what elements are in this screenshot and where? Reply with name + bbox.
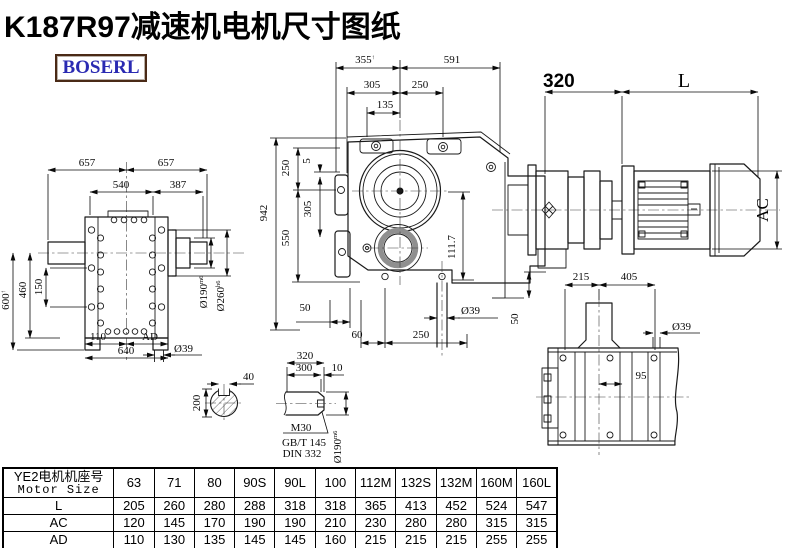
dim-110: 110 [90, 331, 107, 343]
dim-250-bottom: 250 [413, 329, 430, 341]
table-cell: 547 [517, 498, 557, 515]
table-cell: 288 [235, 498, 275, 515]
fin-lines [638, 182, 688, 237]
side-view: 320 L AC 215 405 [492, 70, 782, 350]
dim-550: 550 [280, 229, 292, 246]
col-header: 132M [436, 468, 476, 498]
table-cell: 260 [154, 498, 194, 515]
dim-540: 540 [113, 179, 130, 191]
dim-150: 150 [33, 278, 45, 295]
flange-edges [558, 348, 660, 445]
table-cell: 190 [275, 515, 315, 532]
dim-60: 60 [352, 329, 364, 341]
dimension-drawing: 657 657 540 387 600↑ 460 150 110 AD 640 [0, 0, 800, 466]
table-cell: 255 [517, 532, 557, 548]
table-cell: 318 [315, 498, 355, 515]
table-header-en: Motor Size [4, 484, 113, 497]
table-row-AC: AC 120 145 170 190 190 210 230 280 280 3… [3, 515, 557, 532]
dim-AD: AD [142, 331, 158, 343]
table-cell: 145 [275, 532, 315, 548]
table-cell: 230 [355, 515, 395, 532]
dim-320-shaft: 320 [297, 350, 314, 362]
table-header-cn: YE2电机机座号 [4, 470, 113, 484]
table-cell: 135 [194, 532, 234, 548]
dim-d39-left-view: Ø39 [174, 343, 193, 355]
table-cell: 280 [436, 515, 476, 532]
dim-387: 387 [170, 179, 187, 191]
table-cell: 120 [114, 515, 154, 532]
table-cell: 160 [315, 532, 355, 548]
dim-L: L [678, 70, 690, 92]
table-cell: 318 [275, 498, 315, 515]
label-m30: M30 [291, 422, 312, 434]
dim-460: 460 [17, 281, 29, 298]
col-header: 160M [476, 468, 516, 498]
table-cell: 315 [517, 515, 557, 532]
front-view: 355↑ 591 305 250 135 250 5 305 550 942 [258, 54, 546, 357]
table-cell: 145 [235, 532, 275, 548]
dim-355: 355↑ [355, 54, 375, 66]
table-cell: 215 [396, 532, 436, 548]
label-din332: DIN 332 [283, 448, 322, 460]
table-cell: 315 [476, 515, 516, 532]
top-view-outline [548, 348, 679, 445]
shaft-section-view: 40 200 [191, 371, 255, 422]
dim-d190: Ø190m6 [198, 275, 210, 309]
col-header: 90S [235, 468, 275, 498]
top-view: Ø39 95 [536, 296, 700, 455]
dim-50-bottom: 50 [300, 302, 312, 314]
dim-40: 40 [243, 371, 255, 383]
table-cell: 130 [154, 532, 194, 548]
dim-10: 10 [332, 362, 344, 374]
table-row-AD: AD 110 130 135 145 145 160 215 215 215 2… [3, 532, 557, 548]
table-row-L: L 205 260 280 288 318 318 365 413 452 52… [3, 498, 557, 515]
dim-640: 640 [118, 345, 135, 357]
col-header: 160L [517, 468, 557, 498]
mount-tab-upper [335, 175, 348, 215]
dim-AC: AC [753, 198, 772, 222]
dim-320-side: 320 [543, 71, 575, 92]
dim-942: 942 [258, 205, 270, 222]
row-label-AD: AD [3, 532, 114, 548]
table-cell: 280 [194, 498, 234, 515]
row-label-AC: AC [3, 515, 114, 532]
table-cell: 205 [114, 498, 154, 515]
table-cell: 255 [476, 532, 516, 548]
dim-600: 600↑ [0, 290, 12, 310]
dim-50-right: 50 [509, 313, 521, 325]
col-header: 63 [114, 468, 154, 498]
dim-250-top: 250 [412, 79, 429, 91]
col-header: 80 [194, 468, 234, 498]
table-cell: 210 [315, 515, 355, 532]
table-cell: 110 [114, 532, 154, 548]
dim-135: 135 [377, 99, 394, 111]
motor-dimension-table: YE2电机机座号 Motor Size 63 71 80 90S 90L 100… [2, 467, 558, 548]
dim-95: 95 [636, 370, 648, 382]
dim-d260: Ø260h6 [215, 280, 227, 312]
dim-250-left: 250 [280, 159, 292, 176]
col-header: 100 [315, 468, 355, 498]
dim-d39-top-view: Ø39 [672, 321, 691, 333]
left-view: 657 657 540 387 600↑ 460 150 110 AD 640 [0, 157, 246, 362]
row-label-L: L [3, 498, 114, 515]
col-header: 71 [154, 468, 194, 498]
dim-305-left: 305 [302, 200, 314, 217]
dim-657-right: 657 [158, 157, 175, 169]
table-cell: 215 [355, 532, 395, 548]
col-header: 112M [355, 468, 395, 498]
dim-657-left: 657 [79, 157, 96, 169]
table-cell: 190 [235, 515, 275, 532]
dim-d39-front: Ø39 [461, 305, 480, 317]
col-header: 90L [275, 468, 315, 498]
shaft-detail-view: 320 300 10 Ø190m6 M30 GB/T 145 DIN 332 [276, 350, 349, 463]
dim-215: 215 [573, 271, 590, 283]
dim-405: 405 [621, 271, 638, 283]
dim-305-top: 305 [364, 79, 381, 91]
table-cell: 145 [154, 515, 194, 532]
dim-300: 300 [296, 362, 313, 374]
table-cell: 280 [396, 515, 436, 532]
table-cell: 413 [396, 498, 436, 515]
dim-d190-shaft: Ø190m6 [332, 430, 344, 464]
table-cell: 365 [355, 498, 395, 515]
dim-591: 591 [444, 54, 461, 66]
drawing-page: K187R97减速机电机尺寸图纸 BOSERL [0, 0, 800, 548]
table-header-motor-size: YE2电机机座号 Motor Size [3, 468, 114, 498]
dim-200: 200 [191, 394, 203, 411]
table-cell: 524 [476, 498, 516, 515]
table-cell: 170 [194, 515, 234, 532]
dim-111-7: 111.7 [446, 235, 458, 259]
dim-5: 5 [301, 158, 313, 164]
col-header: 132S [396, 468, 436, 498]
table-cell: 215 [436, 532, 476, 548]
table-cell: 452 [436, 498, 476, 515]
